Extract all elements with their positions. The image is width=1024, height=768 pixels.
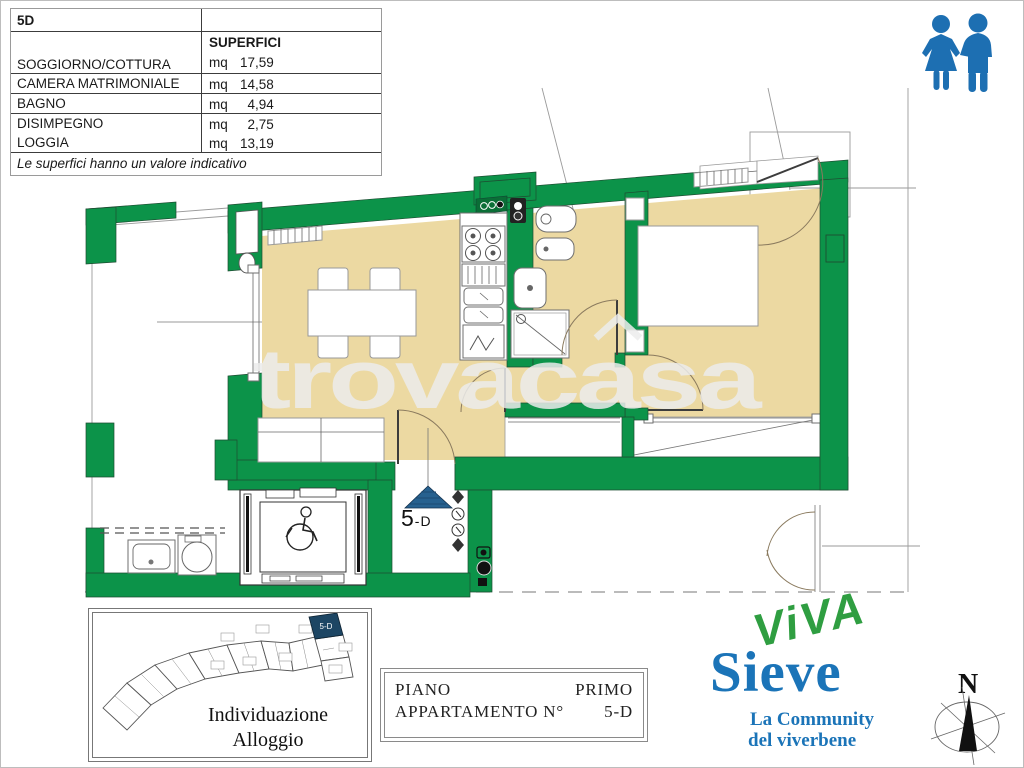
unit-mq: mq <box>209 95 228 114</box>
table-row: CAMERA MATRIMONIALE mq14,58 <box>11 74 381 94</box>
key-plan: 5-D Individuazione Alloggio <box>88 608 372 762</box>
floor-label: PIANO <box>395 679 451 701</box>
area-value: 2,75 <box>228 115 274 134</box>
area-value: 4,94 <box>228 95 274 114</box>
sink-drainer <box>462 264 505 286</box>
unit-suffix: -D <box>415 513 432 529</box>
logo-word-sieve: Sieve <box>710 644 842 701</box>
table-row: DISIMPEGNO mq2,75 <box>11 114 381 133</box>
floor-value: PRIMO <box>575 679 633 701</box>
area-table: 5D SOGGIORNO/COTTURA SUPERFICI mq17,59 C… <box>10 8 382 176</box>
area-value: 14,58 <box>228 75 274 94</box>
apartment-label: APPARTAMENTO N° <box>395 701 564 723</box>
caption-line-2: Alloggio <box>173 728 363 753</box>
table-row: LOGGIA mq13,19 <box>11 133 381 153</box>
room-label: LOGGIA <box>11 133 202 152</box>
bidet-icon <box>536 238 574 260</box>
logo-tagline-1: La Community <box>750 710 874 729</box>
caption-line-1: Individuazione <box>173 703 363 728</box>
female-figure-icon <box>922 15 960 90</box>
unit-mq: mq <box>209 134 228 153</box>
unit-mq: mq <box>209 75 228 94</box>
laundry-fixtures <box>100 528 225 575</box>
male-figure-icon <box>960 14 992 93</box>
apartment-value: 5-D <box>604 701 633 723</box>
compass-needle <box>959 695 977 751</box>
compass-north-label: N <box>958 669 978 700</box>
column-header: SUPERFICI <box>209 33 374 53</box>
logo-tagline-2: del viverbene <box>748 731 856 750</box>
unit-number: 5 <box>401 505 415 531</box>
table-row-unit: 5D <box>11 9 381 32</box>
elevator <box>240 488 366 585</box>
dining-table <box>308 290 416 336</box>
svg-text:trovacasa: trovacasa <box>253 332 764 426</box>
watermark: trovacasa <box>253 318 764 426</box>
table-row: BAGNO mq4,94 <box>11 94 381 114</box>
highlighted-unit-label: 5-D <box>320 622 333 631</box>
brand-logo: ViVA Sieve La Community del viverbene <box>700 600 915 765</box>
washing-machine-icon <box>178 535 216 575</box>
unit-label: 5-D <box>401 505 432 532</box>
compass-icon: N <box>925 665 1015 765</box>
area-value: 17,59 <box>228 53 274 72</box>
room-label: DISIMPEGNO <box>11 114 202 133</box>
unit-code: 5D <box>11 9 202 31</box>
table-row: SOGGIORNO/COTTURA SUPERFICI mq17,59 <box>11 32 381 74</box>
area-value: 13,19 <box>228 134 274 153</box>
double-bed <box>638 226 758 326</box>
title-block: PIANO PRIMO APPARTAMENTO N° 5-D <box>380 668 648 742</box>
table-note: Le superfici hanno un valore indicativo <box>11 153 381 175</box>
toilet-icon <box>536 206 576 232</box>
unit-mq: mq <box>209 53 228 72</box>
key-plan-caption: Individuazione Alloggio <box>173 703 363 753</box>
room-label: CAMERA MATRIMONIALE <box>11 74 202 93</box>
room-label: BAGNO <box>11 94 202 113</box>
unit-mq: mq <box>209 115 228 134</box>
room-label: SOGGIORNO/COTTURA <box>11 32 202 73</box>
male-female-icon <box>912 13 1008 99</box>
unit-code-spacer <box>202 9 381 31</box>
